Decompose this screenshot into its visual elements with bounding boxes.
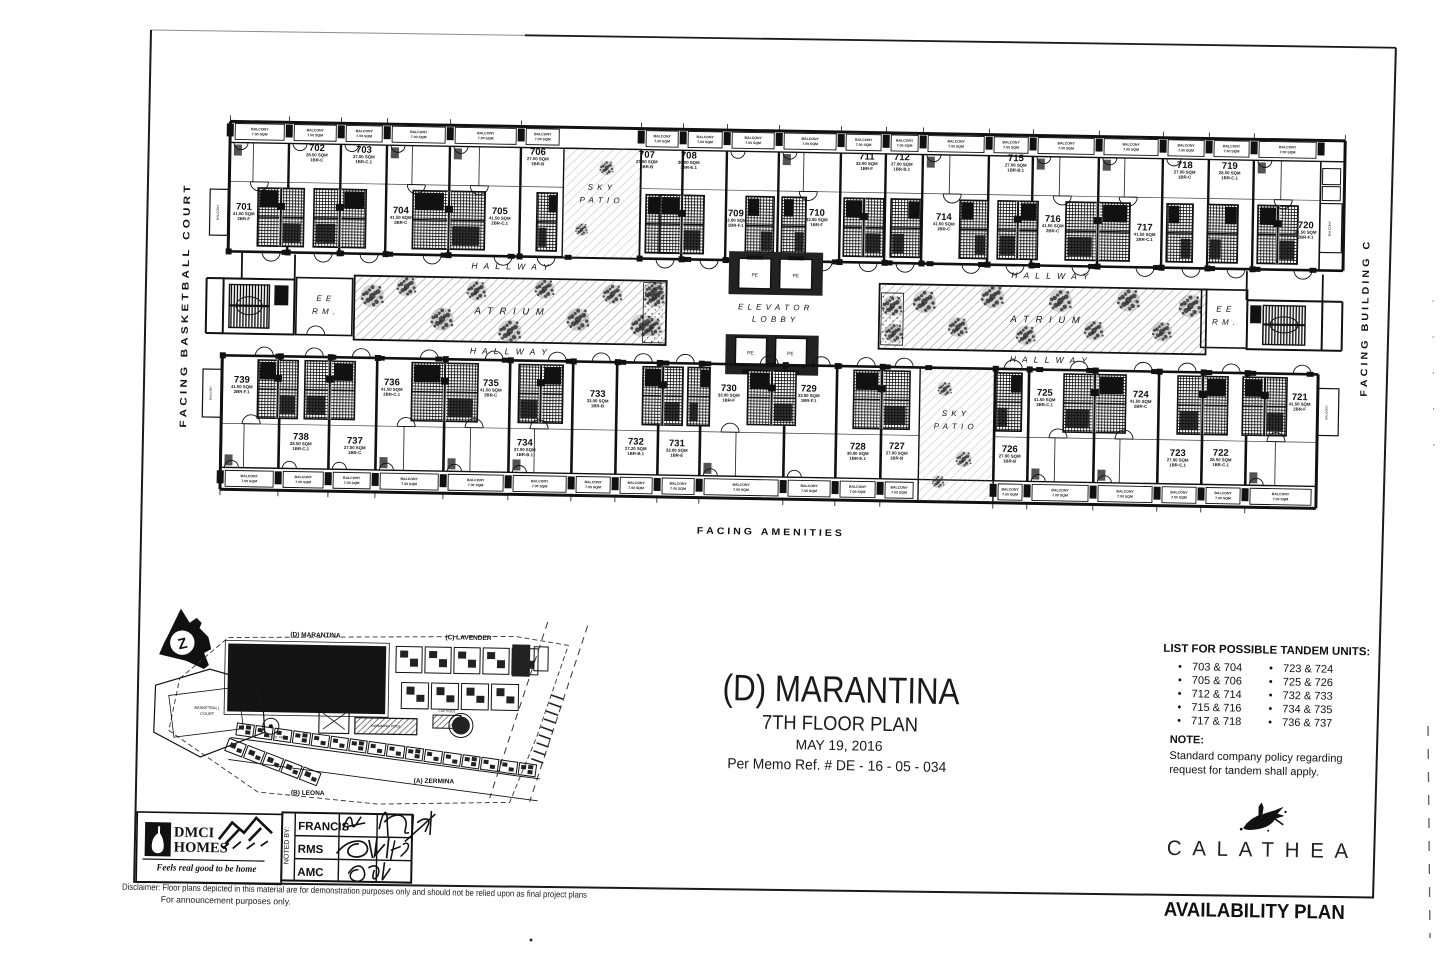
svg-text:1BR-C.1: 1BR-C.1 xyxy=(1212,462,1229,467)
svg-text:E L E V A T O R: E L E V A T O R xyxy=(738,302,811,312)
svg-text:2BR-C: 2BR-C xyxy=(394,220,407,225)
svg-text:1BR-B.1: 1BR-B.1 xyxy=(893,166,910,171)
svg-text:L O B B Y: L O B B Y xyxy=(752,315,796,325)
svg-text:A T R I U M: A T R I U M xyxy=(1009,314,1081,326)
svg-text:2BR-F: 2BR-F xyxy=(237,216,250,221)
svg-text:BALCONY: BALCONY xyxy=(947,139,965,143)
svg-text:BALCONY: BALCONY xyxy=(295,475,313,479)
svg-text:(A) ZERMINA: (A) ZERMINA xyxy=(414,778,455,786)
svg-text:1BR-B.1: 1BR-B.1 xyxy=(627,451,644,456)
svg-text:717 & 718: 717 & 718 xyxy=(1191,715,1241,728)
svg-text:BALCONY: BALCONY xyxy=(654,134,672,138)
svg-text:BALCONY: BALCONY xyxy=(732,483,750,487)
svg-text:7.00 SQM: 7.00 SQM xyxy=(697,140,713,144)
svg-text:BALCONY: BALCONY xyxy=(1001,487,1019,491)
svg-text:H A L L W A Y: H A L L W A Y xyxy=(470,346,549,357)
svg-text:BALCONY: BALCONY xyxy=(534,132,552,136)
svg-text:S K Y: S K Y xyxy=(588,183,613,192)
svg-text:BALCONY: BALCONY xyxy=(467,478,485,482)
svg-text:PE: PE xyxy=(747,350,754,356)
svg-text:7.00 SQM: 7.00 SQM xyxy=(802,142,818,146)
svg-text:AMC: AMC xyxy=(297,867,323,879)
svg-text:BALCONY: BALCONY xyxy=(697,135,715,139)
svg-text:7.00 SQM: 7.00 SQM xyxy=(670,487,686,491)
svg-text:F A C I N G A M E N I T I E: F A C I N G A M E N I T I E S xyxy=(697,526,842,540)
svg-text:RMS: RMS xyxy=(298,844,324,856)
svg-text:PE: PE xyxy=(751,273,758,279)
svg-text:H A L L W A Y: H A L L W A Y xyxy=(1010,354,1089,365)
svg-text:Feels real good to be home: Feels real good to be home xyxy=(155,863,257,875)
svg-text:7.00 SQM: 7.00 SQM xyxy=(411,135,427,139)
svg-text:7.00 SQM: 7.00 SQM xyxy=(1273,497,1289,501)
svg-text:BALCONY: BALCONY xyxy=(849,485,867,489)
svg-text:BALCONY: BALCONY xyxy=(1328,220,1332,236)
svg-text:2BR-F.1: 2BR-F.1 xyxy=(234,389,250,394)
svg-text:P A T I O: P A T I O xyxy=(580,196,621,206)
svg-text:BALCONY: BALCONY xyxy=(356,129,374,133)
svg-text:BALCONY: BALCONY xyxy=(1214,491,1232,495)
svg-text:732 & 733: 732 & 733 xyxy=(1282,690,1332,703)
svg-text:7.00 SQM: 7.00 SQM xyxy=(252,132,268,136)
svg-text:2BR-C.1: 2BR-C.1 xyxy=(1136,237,1153,242)
svg-text:PE: PE xyxy=(792,273,799,279)
svg-text:BALCONY: BALCONY xyxy=(669,482,687,486)
svg-text:7.00 SQM: 7.00 SQM xyxy=(733,488,749,492)
svg-text:BALCONY: BALCONY xyxy=(1272,492,1290,496)
svg-text:2BR-C: 2BR-C xyxy=(484,392,497,397)
svg-text:7.00 SQM: 7.00 SQM xyxy=(1123,147,1139,151)
svg-text:1BR-B.1: 1BR-B.1 xyxy=(1007,167,1024,172)
svg-text:F A C I N G B U I L D I N G: F A C I N G B U I L D I N G C xyxy=(1359,242,1373,397)
svg-text:BALCONY: BALCONY xyxy=(627,481,645,485)
svg-text:•: • xyxy=(1178,661,1182,673)
svg-text:7.00 SQM: 7.00 SQM xyxy=(1171,495,1187,499)
svg-text:PE: PE xyxy=(787,351,794,357)
svg-text:7.00 SQM: 7.00 SQM xyxy=(1117,494,1133,498)
svg-text:7.00 SQM: 7.00 SQM xyxy=(585,485,601,489)
svg-text:BALCONY: BALCONY xyxy=(251,127,269,131)
svg-text:1BR-C.1: 1BR-C.1 xyxy=(292,446,309,451)
svg-text:7.00 SQM: 7.00 SQM xyxy=(532,484,548,488)
svg-text:2BR-C.1: 2BR-C.1 xyxy=(1036,402,1053,407)
svg-text:7.00 SQM: 7.00 SQM xyxy=(401,482,417,486)
svg-text:•: • xyxy=(1268,717,1272,729)
svg-text:BALCONY: BALCONY xyxy=(401,477,419,481)
svg-text:7.00 SQM: 7.00 SQM xyxy=(654,139,670,143)
svg-text:•: • xyxy=(1178,688,1182,700)
svg-text:7.00 SQM: 7.00 SQM xyxy=(468,483,484,487)
svg-text:1BR-B: 1BR-B xyxy=(591,403,604,408)
svg-text:7TH FLOOR PLAN: 7TH FLOOR PLAN xyxy=(762,712,918,737)
svg-text:7.00 SQM: 7.00 SQM xyxy=(897,144,913,148)
svg-text:7.00 SQM: 7.00 SQM xyxy=(344,481,360,485)
svg-text:725 & 726: 725 & 726 xyxy=(1283,676,1333,689)
svg-text:H A L L W A Y: H A L L W A Y xyxy=(471,261,550,272)
svg-text:S K Y: S K Y xyxy=(942,409,967,418)
svg-text:7.00 SQM: 7.00 SQM xyxy=(745,141,761,145)
svg-text:7.00 SQM: 7.00 SQM xyxy=(1215,496,1231,500)
svg-text:7.00 SQM: 7.00 SQM xyxy=(1003,145,1019,149)
svg-text:7.00 SQM: 7.00 SQM xyxy=(1002,492,1018,496)
svg-text:2BR-C: 2BR-C xyxy=(1134,404,1147,409)
svg-text:R M .: R M . xyxy=(312,307,336,316)
svg-text:BALCONY: BALCONY xyxy=(531,479,549,483)
svg-text:1BR-C.1: 1BR-C.1 xyxy=(1221,175,1238,180)
svg-text:•: • xyxy=(1177,715,1181,727)
svg-text:LAP POOL: LAP POOL xyxy=(438,709,455,713)
svg-text:1BR-E.1: 1BR-E.1 xyxy=(680,165,697,170)
svg-text:BALCONY: BALCONY xyxy=(1177,143,1195,147)
svg-text:BALCONY: BALCONY xyxy=(1324,405,1328,419)
svg-text:7.00 SQM: 7.00 SQM xyxy=(535,137,551,141)
svg-text:1BR-C: 1BR-C xyxy=(348,450,361,455)
svg-text:7.00 SQM: 7.00 SQM xyxy=(1280,150,1296,154)
svg-text:•: • xyxy=(1178,675,1182,687)
svg-text:•: • xyxy=(1177,702,1181,714)
svg-text:BALCONY: BALCONY xyxy=(855,138,873,142)
svg-text:BALCONY: BALCONY xyxy=(1279,145,1297,149)
svg-text:2BR-C.1: 2BR-C.1 xyxy=(383,392,400,397)
svg-text:7.00 SQM: 7.00 SQM xyxy=(628,486,644,490)
svg-text:(B) LEONA: (B) LEONA xyxy=(291,790,325,798)
svg-text:BALCONY: BALCONY xyxy=(209,386,213,400)
svg-text:7.00 SQM: 7.00 SQM xyxy=(241,479,257,483)
svg-text:1BR-C.1: 1BR-C.1 xyxy=(1169,462,1186,467)
svg-text:7.00 SQM: 7.00 SQM xyxy=(1052,493,1068,497)
svg-text:7.00 SQM: 7.00 SQM xyxy=(1058,146,1074,150)
svg-text:BALCONY: BALCONY xyxy=(1122,142,1140,146)
svg-text:7.00 SQM: 7.00 SQM xyxy=(295,480,311,484)
svg-text:BALCONY: BALCONY xyxy=(1116,489,1134,493)
svg-text:1BR-F.1: 1BR-F.1 xyxy=(728,223,744,228)
svg-text:1BR-F: 1BR-F xyxy=(860,166,873,171)
svg-text:2BR-F.1: 2BR-F.1 xyxy=(1298,235,1314,240)
svg-text:7.00 SQM: 7.00 SQM xyxy=(948,144,964,148)
svg-text:BALCONY: BALCONY xyxy=(307,128,325,132)
svg-text:•: • xyxy=(1269,676,1273,688)
svg-text:1BR-C: 1BR-C xyxy=(1178,174,1191,179)
svg-text:1BR-E: 1BR-E xyxy=(670,453,683,458)
svg-text:BALCONY: BALCONY xyxy=(896,139,914,143)
svg-text:1BR-C.1: 1BR-C.1 xyxy=(355,159,372,164)
svg-text:BALCONY: BALCONY xyxy=(890,485,908,489)
svg-text:Per Memo Ref. # DE - 16 - 05: Per Memo Ref. # DE - 16 - 05 - 034 xyxy=(727,756,946,776)
svg-text:1BR-B: 1BR-B xyxy=(640,164,653,169)
svg-text:BALCONY: BALCONY xyxy=(802,137,820,141)
svg-text:1BR-B: 1BR-B xyxy=(1003,458,1016,463)
svg-text:7.00 SQM: 7.00 SQM xyxy=(801,489,817,493)
svg-text:7.00 SQM: 7.00 SQM xyxy=(307,133,323,137)
svg-text:734 & 735: 734 & 735 xyxy=(1282,703,1332,716)
svg-text:•: • xyxy=(1269,690,1273,702)
svg-text:1BR-E.1: 1BR-E.1 xyxy=(849,456,866,461)
svg-text:(C) LAVENDER: (C) LAVENDER xyxy=(445,634,492,642)
svg-text:LIST FOR POSSIBLE TANDEM UNITS: LIST FOR POSSIBLE TANDEM UNITS: xyxy=(1163,643,1370,659)
svg-text:BALCONY: BALCONY xyxy=(1002,140,1020,144)
svg-text:1BR-B: 1BR-B xyxy=(890,455,903,460)
svg-text:2BR-C: 2BR-C xyxy=(1046,228,1059,233)
svg-text:F A C I N G B A S K E T B A: F A C I N G B A S K E T B A L L C O U R … xyxy=(178,185,193,427)
svg-text:1BR-C: 1BR-C xyxy=(310,157,323,162)
svg-text:2BR-F: 2BR-F xyxy=(1293,406,1306,411)
svg-text:736 & 737: 736 & 737 xyxy=(1282,717,1332,730)
svg-text:MAY 19, 2016: MAY 19, 2016 xyxy=(795,736,882,754)
svg-text:703 & 704: 703 & 704 xyxy=(1192,661,1242,674)
svg-text:A T R I U M: A T R I U M xyxy=(473,306,545,318)
svg-text:BALCONY: BALCONY xyxy=(343,476,361,480)
svg-text:AVAILABILITY PLAN: AVAILABILITY PLAN xyxy=(1164,899,1345,924)
svg-text:FRANCIS: FRANCIS xyxy=(298,821,350,834)
svg-text:request for tandem shall apply: request for tandem shall apply. xyxy=(1169,764,1319,779)
svg-text:1BR-C: 1BR-C xyxy=(937,226,950,231)
svg-text:BALCONY: BALCONY xyxy=(1170,490,1188,494)
svg-text:1BR-F.1: 1BR-F.1 xyxy=(801,398,817,403)
svg-text:705 & 706: 705 & 706 xyxy=(1192,675,1242,688)
svg-text:7.00 SQM: 7.00 SQM xyxy=(478,136,494,140)
svg-text:723 & 724: 723 & 724 xyxy=(1283,663,1333,676)
svg-text:7.00 SQM: 7.00 SQM xyxy=(856,143,872,147)
svg-text:HOMES: HOMES xyxy=(174,840,228,857)
svg-text:1BR-F: 1BR-F xyxy=(810,222,823,227)
svg-text:BALCONY: BALCONY xyxy=(1051,488,1069,492)
svg-text:BALCONY: BALCONY xyxy=(745,136,763,140)
svg-text:BALCONY: BALCONY xyxy=(800,484,818,488)
svg-text:1BR-B: 1BR-B xyxy=(531,161,544,166)
svg-text:7.00 SQM: 7.00 SQM xyxy=(1178,148,1194,152)
svg-text:E E: E E xyxy=(1216,305,1232,314)
svg-text:•: • xyxy=(1269,663,1273,675)
svg-text:715 & 716: 715 & 716 xyxy=(1191,702,1241,715)
svg-text:(D) MARANTINA: (D) MARANTINA xyxy=(290,632,341,640)
svg-text:1BR-F: 1BR-F xyxy=(722,398,735,403)
svg-text:BASKETBALL: BASKETBALL xyxy=(194,705,220,710)
svg-text:NOTE:: NOTE: xyxy=(1170,734,1204,747)
svg-text:For announcement purposes only: For announcement purposes only. xyxy=(161,894,291,906)
svg-text:P A T I O: P A T I O xyxy=(934,422,975,432)
svg-text:BALCONY: BALCONY xyxy=(241,474,259,478)
svg-text:BALCONY: BALCONY xyxy=(1057,141,1075,145)
svg-text:BALCONY: BALCONY xyxy=(410,130,428,134)
svg-text:7.00 SQM: 7.00 SQM xyxy=(891,490,907,494)
svg-text:7.00 SQM: 7.00 SQM xyxy=(1224,149,1240,153)
svg-text:•: • xyxy=(1268,703,1272,715)
svg-text:BALCONY: BALCONY xyxy=(1223,144,1241,148)
svg-text:712 & 714: 712 & 714 xyxy=(1191,688,1241,701)
svg-text:7.00 SQM: 7.00 SQM xyxy=(850,490,866,494)
svg-text:2BR-C.1: 2BR-C.1 xyxy=(491,220,508,225)
svg-text:R M .: R M . xyxy=(1212,318,1236,327)
svg-text:1BR-B.1: 1BR-B.1 xyxy=(516,452,533,457)
svg-text:BALCONY: BALCONY xyxy=(477,131,495,135)
svg-text:BALCONY: BALCONY xyxy=(216,204,220,220)
svg-text:Standard company policy regard: Standard company policy regarding xyxy=(1169,750,1342,765)
svg-text:CALATHEA: CALATHEA xyxy=(1167,837,1359,863)
svg-text:(D) MARANTINA: (D) MARANTINA xyxy=(722,667,960,712)
svg-text:SWIMMING POOL: SWIMMING POOL xyxy=(371,724,400,729)
svg-text:H A L L W A Y: H A L L W A Y xyxy=(1011,270,1090,281)
svg-text:E E: E E xyxy=(316,294,332,303)
svg-text:COURT: COURT xyxy=(200,711,215,716)
svg-text:7.00 SQM: 7.00 SQM xyxy=(356,134,372,138)
svg-text:NOTED BY:: NOTED BY: xyxy=(283,827,291,865)
svg-text:BALCONY: BALCONY xyxy=(584,480,602,484)
